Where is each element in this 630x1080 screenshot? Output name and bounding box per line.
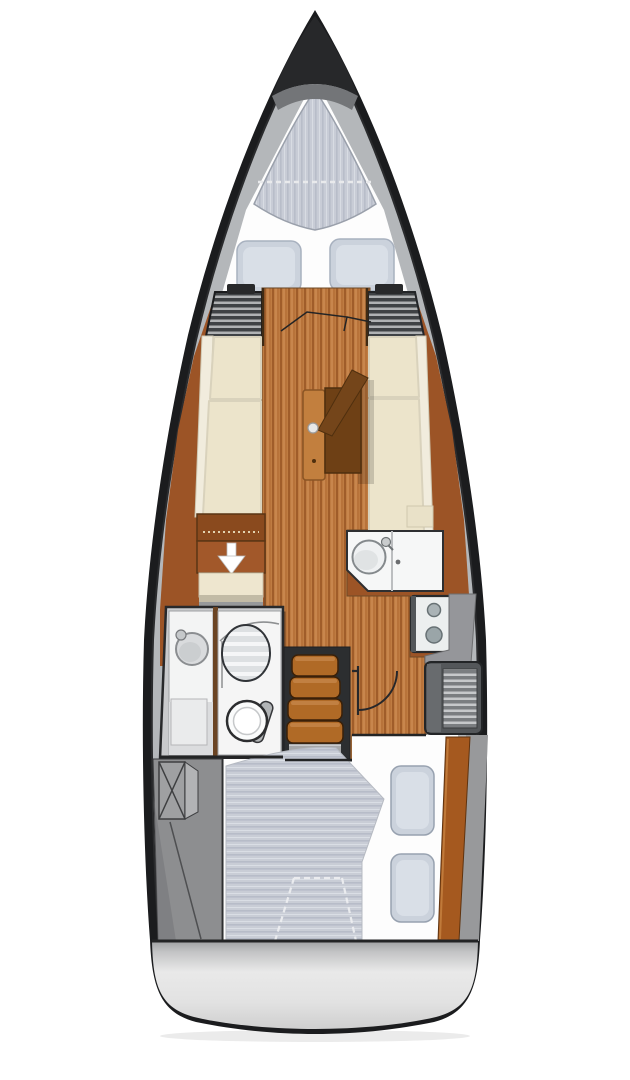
bulkhead-hinge-starboard — [375, 284, 403, 294]
boat-floorplan — [0, 0, 630, 1080]
hatch-flap — [185, 762, 198, 819]
head-compartment — [160, 607, 283, 759]
stove-burner-small — [428, 604, 441, 617]
aft-pillow-aft — [391, 854, 434, 922]
galley-locker-handle — [396, 560, 401, 565]
head-washbasin-bowl — [179, 642, 201, 662]
vent-locker-slats — [443, 669, 477, 728]
table-leaf — [303, 390, 325, 480]
settee-starboard — [369, 336, 433, 531]
x-marked-hatch — [159, 762, 198, 819]
settee-port-cushion-fwd — [210, 337, 261, 399]
bulkhead-hinge-port — [227, 284, 255, 294]
stove-burner-large — [426, 627, 442, 643]
transom-platform — [152, 941, 478, 1029]
galley-end-shelf — [407, 506, 433, 527]
vent-locker — [425, 662, 482, 734]
cabinet-upper — [197, 514, 265, 541]
slatted-locker-starboard — [368, 292, 425, 341]
settee-port — [195, 336, 261, 517]
galley-stove — [411, 596, 453, 652]
head-shelf — [171, 699, 207, 745]
galley-sink-basin — [354, 550, 378, 570]
settee-starboard-cushion-fwd — [369, 337, 419, 397]
head-divider-wall — [213, 607, 218, 759]
shower-seat — [220, 625, 272, 681]
step-4-highlight — [290, 723, 340, 727]
table-fitting-dot — [312, 459, 316, 463]
head-faucet — [176, 630, 186, 640]
cabinet-step-edge — [199, 595, 263, 602]
swim-platform — [152, 941, 478, 1029]
stove-gimbal-rail — [411, 596, 416, 652]
companionway — [284, 647, 350, 759]
slatted-locker-port — [205, 292, 262, 341]
storage-cabinet — [197, 514, 265, 611]
port-technical-locker — [153, 759, 222, 941]
step-1-highlight — [295, 657, 335, 661]
settee-port-cushion-aft — [203, 401, 261, 515]
floorplan-stage — [0, 0, 630, 1080]
table-cup-holder — [308, 423, 318, 433]
cabinet-step — [199, 573, 263, 597]
v-berth-pillow-starboard — [330, 239, 394, 291]
aft-pillow-forward — [391, 766, 434, 835]
aft-mattress — [226, 747, 384, 941]
step-3-highlight — [291, 701, 339, 705]
step-2-highlight — [293, 679, 337, 683]
toilet-bowl-inner — [234, 708, 261, 735]
